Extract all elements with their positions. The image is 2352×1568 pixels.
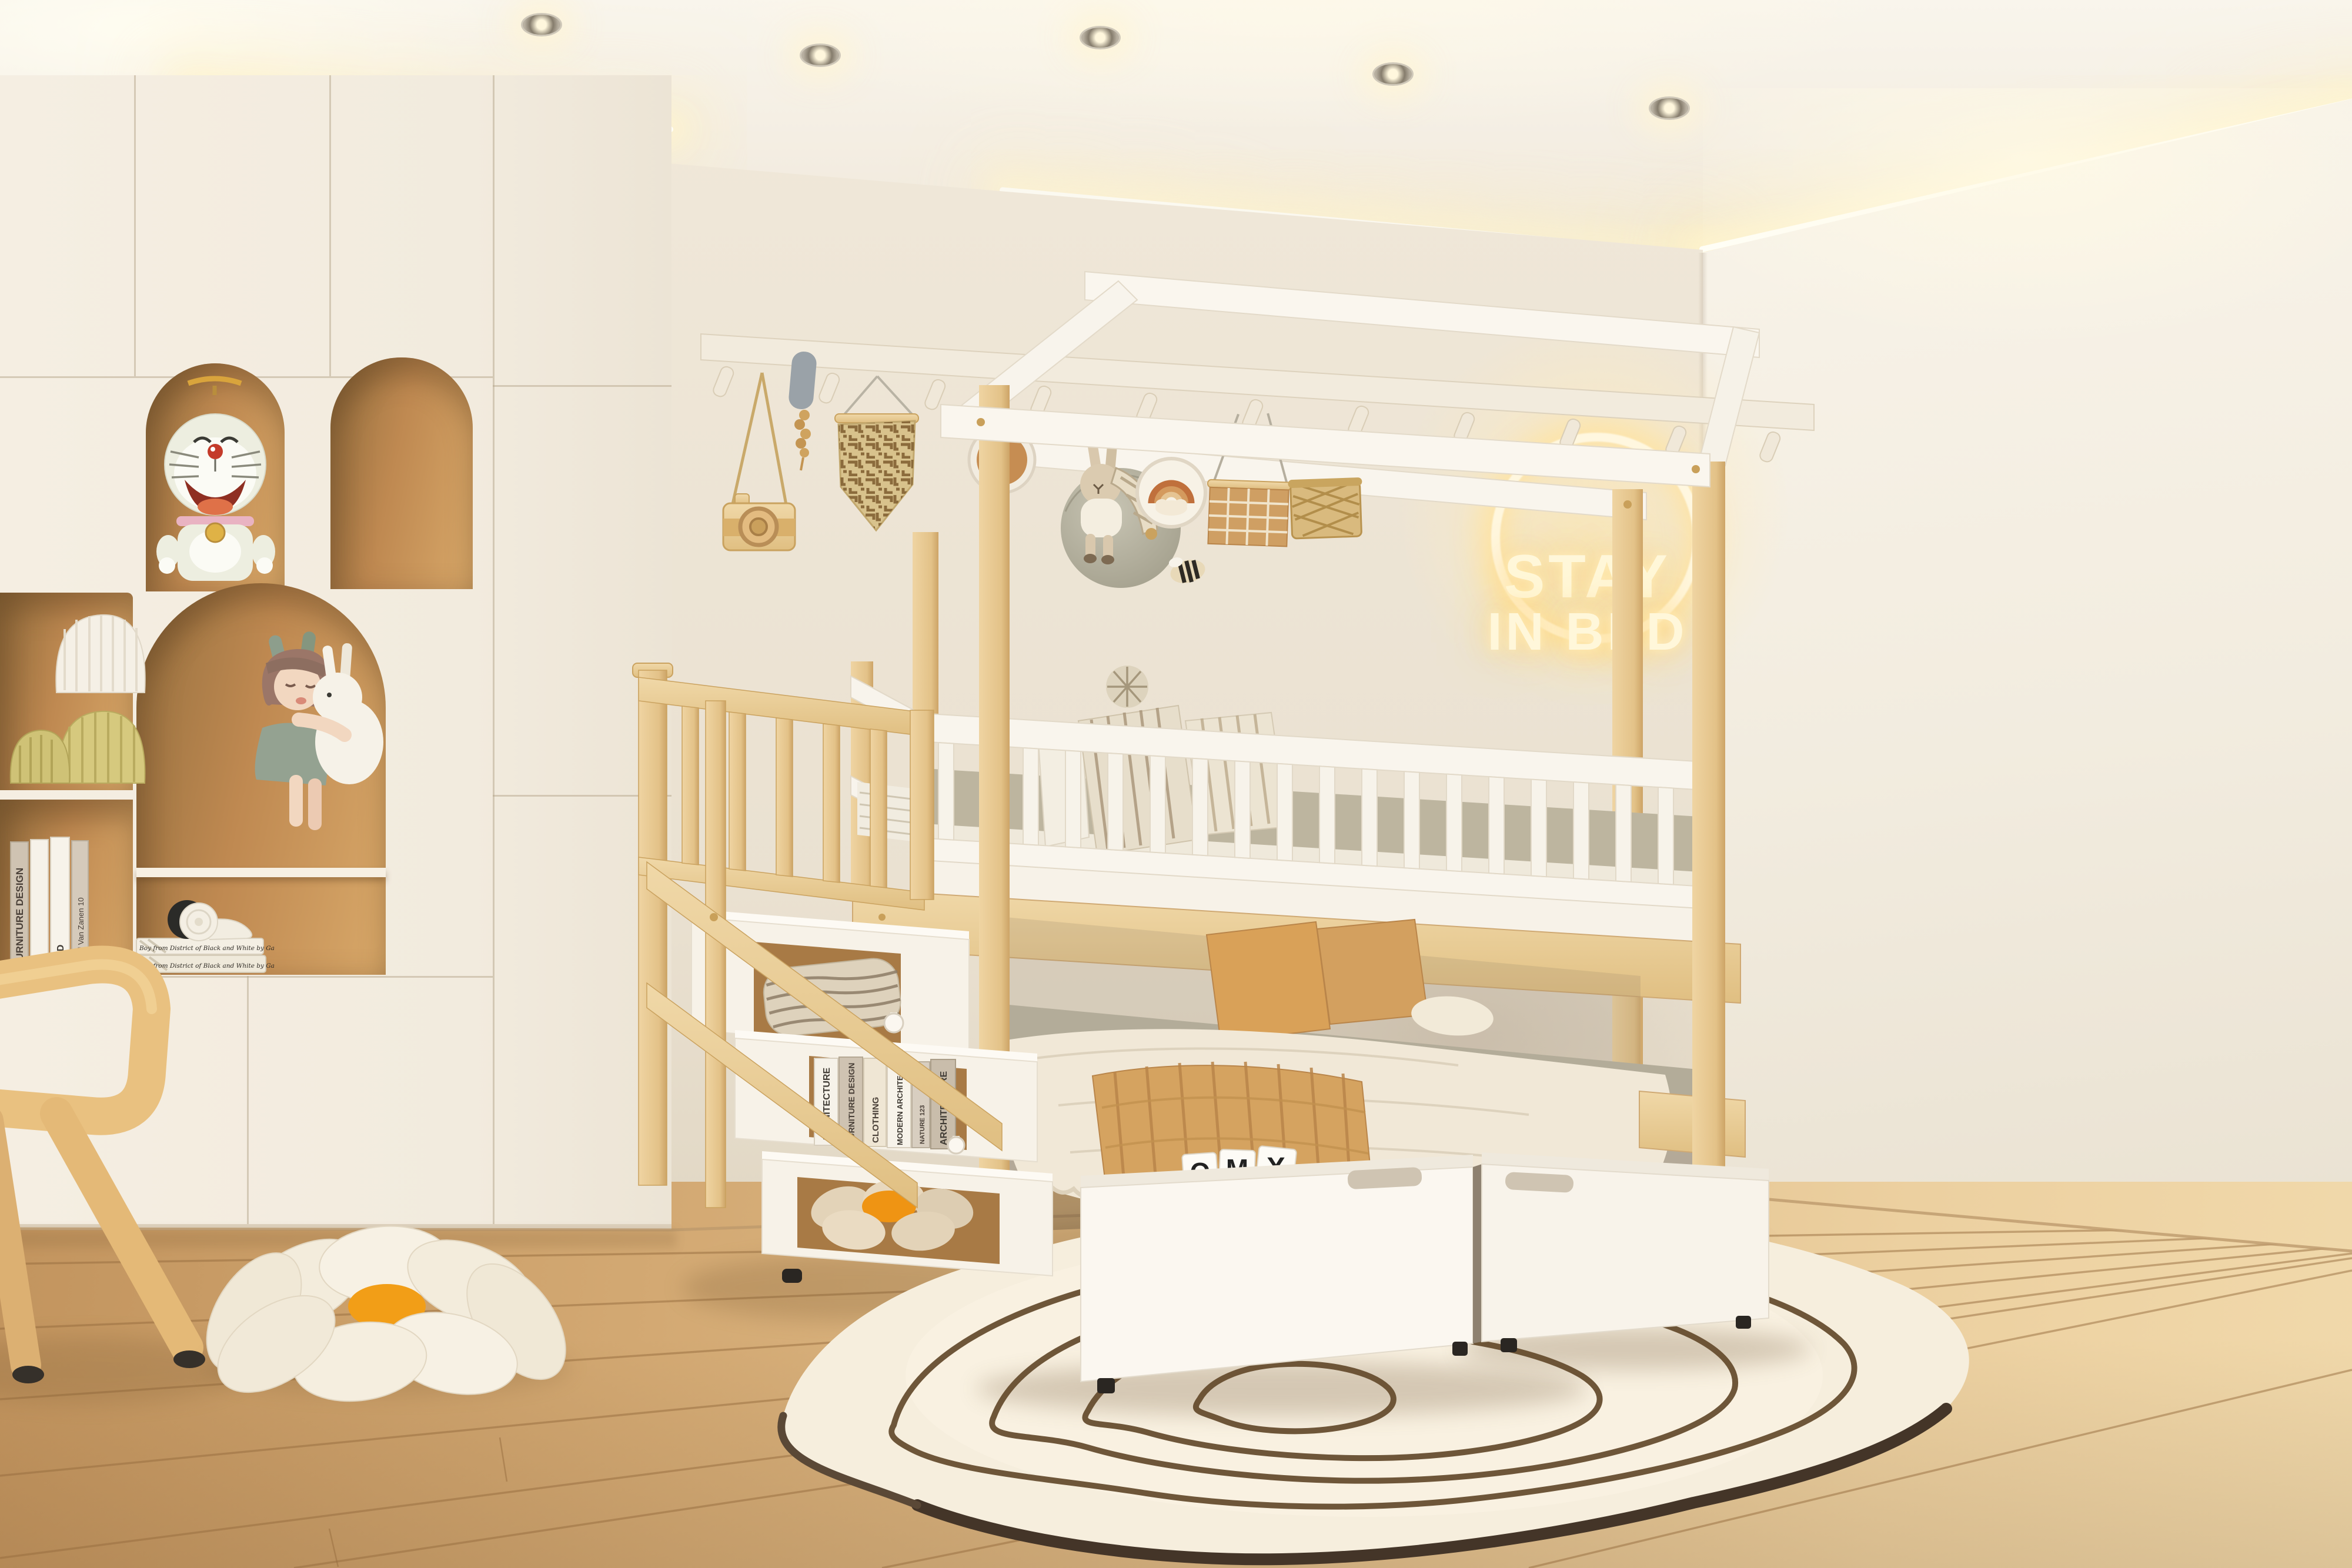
ridge-beam [1085,272,1759,357]
stair-caster [782,1269,802,1283]
drawer-notch [1505,1172,1573,1193]
rear-left-post [913,532,938,716]
front-right-post [1692,462,1725,1229]
drawer-foot [1452,1342,1468,1356]
scene-objects: O M X [0,0,2352,1568]
stair-front-post [706,701,726,1208]
stair-corner-post [639,670,667,1185]
hanging-tag-with-rope [788,350,817,470]
rainbow-plate [1137,459,1205,527]
camel-pillow [1207,922,1330,1042]
stair-knob [884,1012,903,1032]
book-spine-title: NATURE 123 [919,1105,926,1144]
cactus-lamp [11,615,145,783]
peg-hook [711,365,735,398]
woven-basket [1288,477,1364,539]
book-spine-title: Boy from District of Black and White by … [139,962,275,969]
peg-hook [1758,430,1782,463]
round-striped-pillow [1106,666,1148,708]
daisy-floor-pillow [187,1221,585,1412]
storage-drawer-right [1482,1152,1769,1352]
book-spine-title: Boy from District of Black and White by … [139,945,275,952]
drawer-notch [1347,1167,1422,1190]
headphones-on-books: Boy from District of Black and White by … [134,900,275,972]
stair-knob [948,1136,964,1154]
drawer-foot [1736,1316,1751,1329]
chair-foot-glide [12,1366,44,1383]
chair-foot-glide [173,1350,205,1368]
book-spine-title: CLOTHING [871,1097,881,1143]
tubular-chair [0,965,205,1383]
book-spine-title: FURNITURE DESIGN [14,868,25,967]
drawer-gap [1473,1164,1482,1343]
peg-hook [817,372,841,404]
girl-with-rabbit-figurine [255,631,383,830]
hanging-pennant-banner [835,376,918,530]
camel-pillow [1317,920,1428,1024]
hanging-toy-camera [723,373,795,550]
room-scene: STAY IN BED [0,0,2352,1568]
doraemon-figurine [156,379,275,581]
drawer-foot [1097,1378,1115,1393]
drawer-foot [1501,1338,1517,1352]
white-headphones [168,900,252,941]
